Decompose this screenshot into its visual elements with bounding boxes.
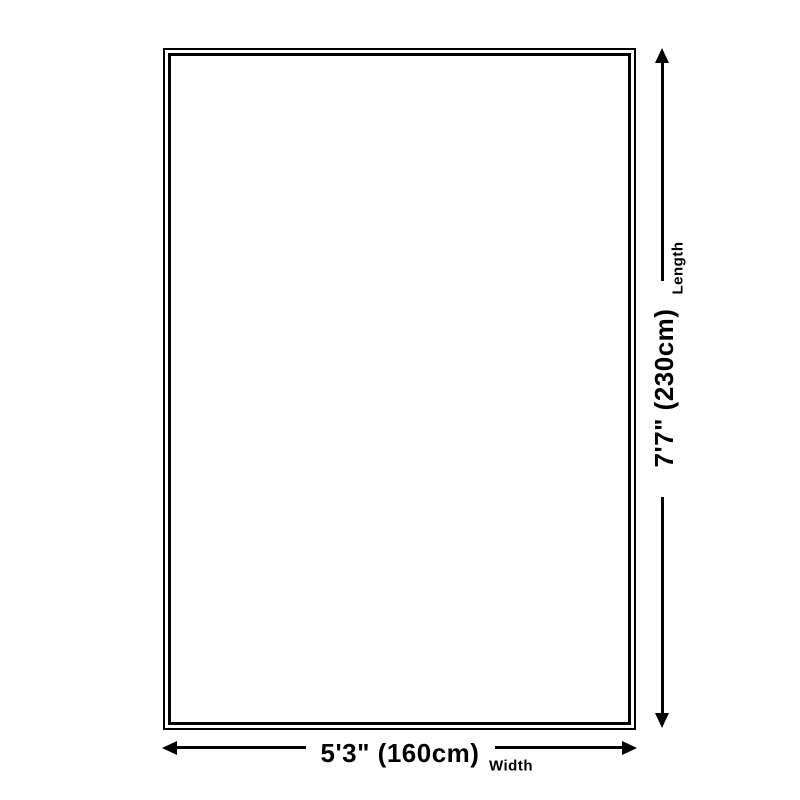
- width-dimension-line-right: [495, 746, 622, 749]
- rug-outline: [163, 48, 636, 730]
- arrow-left-icon: [162, 741, 177, 755]
- length-dimension-line-top: [661, 60, 664, 281]
- length-dimension-line-bottom: [661, 497, 664, 714]
- arrow-right-icon: [622, 741, 637, 755]
- arrow-down-icon: [655, 713, 669, 728]
- length-label: Length: [671, 242, 686, 295]
- width-dimension-line-left: [177, 746, 306, 749]
- width-label: Width: [489, 759, 533, 774]
- length-value: 7'7" (230cm): [651, 309, 677, 468]
- rug-inner-border: [168, 53, 631, 725]
- rug-size-diagram: Length 7'7" (230cm) 5'3" (160cm) Width: [0, 0, 800, 800]
- width-value: 5'3" (160cm): [321, 740, 480, 766]
